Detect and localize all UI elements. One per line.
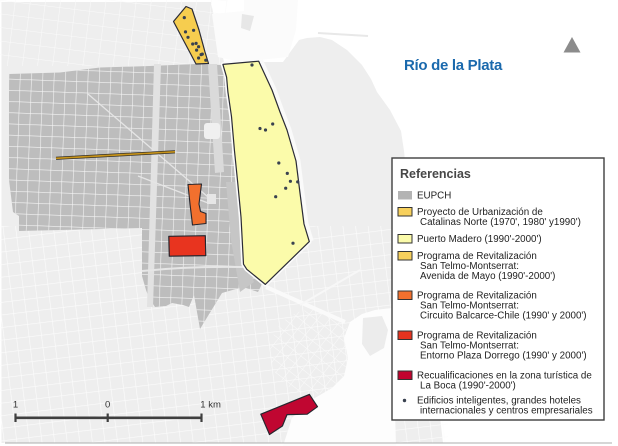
svg-text:0: 0 [105,400,110,411]
svg-text:Avenida de Mayo (1990'-2000'): Avenida de Mayo (1990'-2000') [420,271,555,282]
svg-text:Puerto Madero (1990'-2000'): Puerto Madero (1990'-2000') [417,234,542,245]
svg-text:Catalinas Norte (1970', 1980': Catalinas Norte (1970', 1980' y1990') [420,217,581,228]
svg-text:Circuito Balcarce-Chile (1990': Circuito Balcarce-Chile (1990' y 2000') [420,311,587,322]
svg-text:Referencias: Referencias [400,167,471,181]
svg-text:EUPCH: EUPCH [417,191,451,202]
svg-text:1: 1 [13,400,18,411]
svg-text:1 km: 1 km [200,400,221,411]
svg-text:La Boca (1990'-2000'): La Boca (1990'-2000') [420,381,516,392]
svg-text:internacionales y centros empr: internacionales y centros empresariales [420,406,593,417]
svg-text:Río de la Plata: Río de la Plata [404,57,503,74]
svg-text:Entorno Plaza Dorrego (1990' y: Entorno Plaza Dorrego (1990' y 2000') [420,351,587,362]
